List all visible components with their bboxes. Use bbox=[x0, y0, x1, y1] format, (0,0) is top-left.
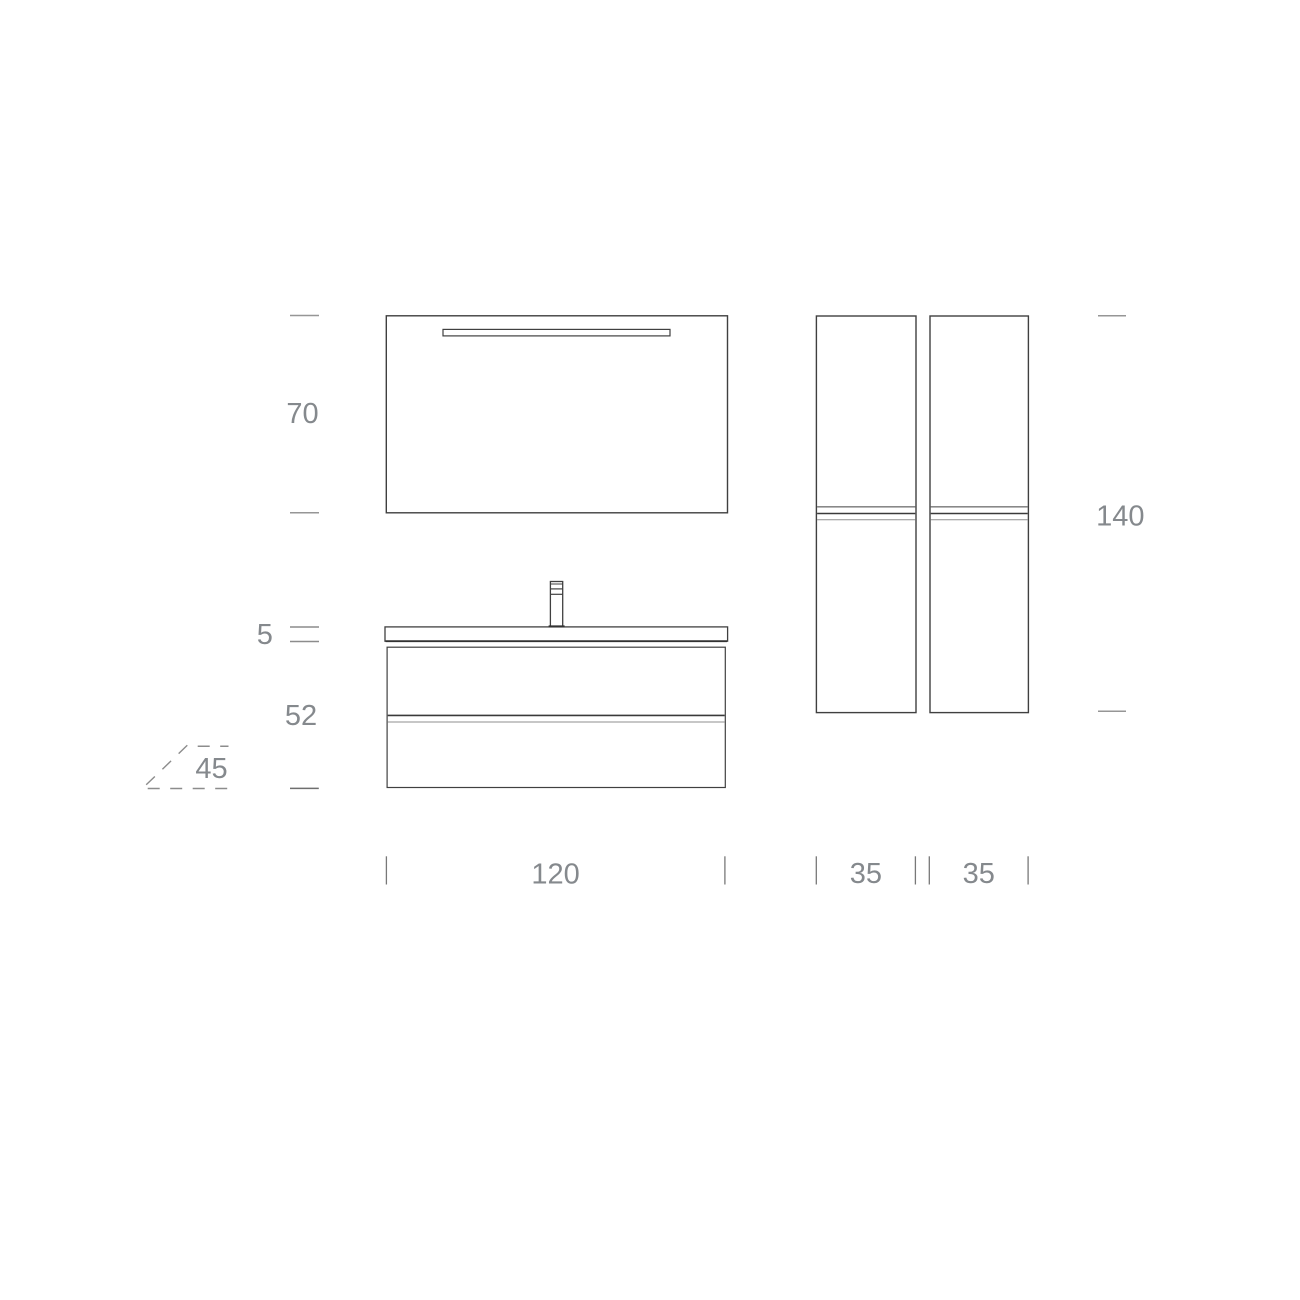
svg-text:35: 35 bbox=[963, 858, 995, 890]
svg-text:35: 35 bbox=[850, 858, 882, 890]
svg-text:5: 5 bbox=[257, 619, 273, 651]
svg-text:120: 120 bbox=[531, 859, 579, 891]
svg-text:140: 140 bbox=[1096, 500, 1144, 532]
svg-text:70: 70 bbox=[286, 398, 318, 430]
svg-text:52: 52 bbox=[285, 700, 317, 732]
svg-text:45: 45 bbox=[195, 753, 227, 785]
